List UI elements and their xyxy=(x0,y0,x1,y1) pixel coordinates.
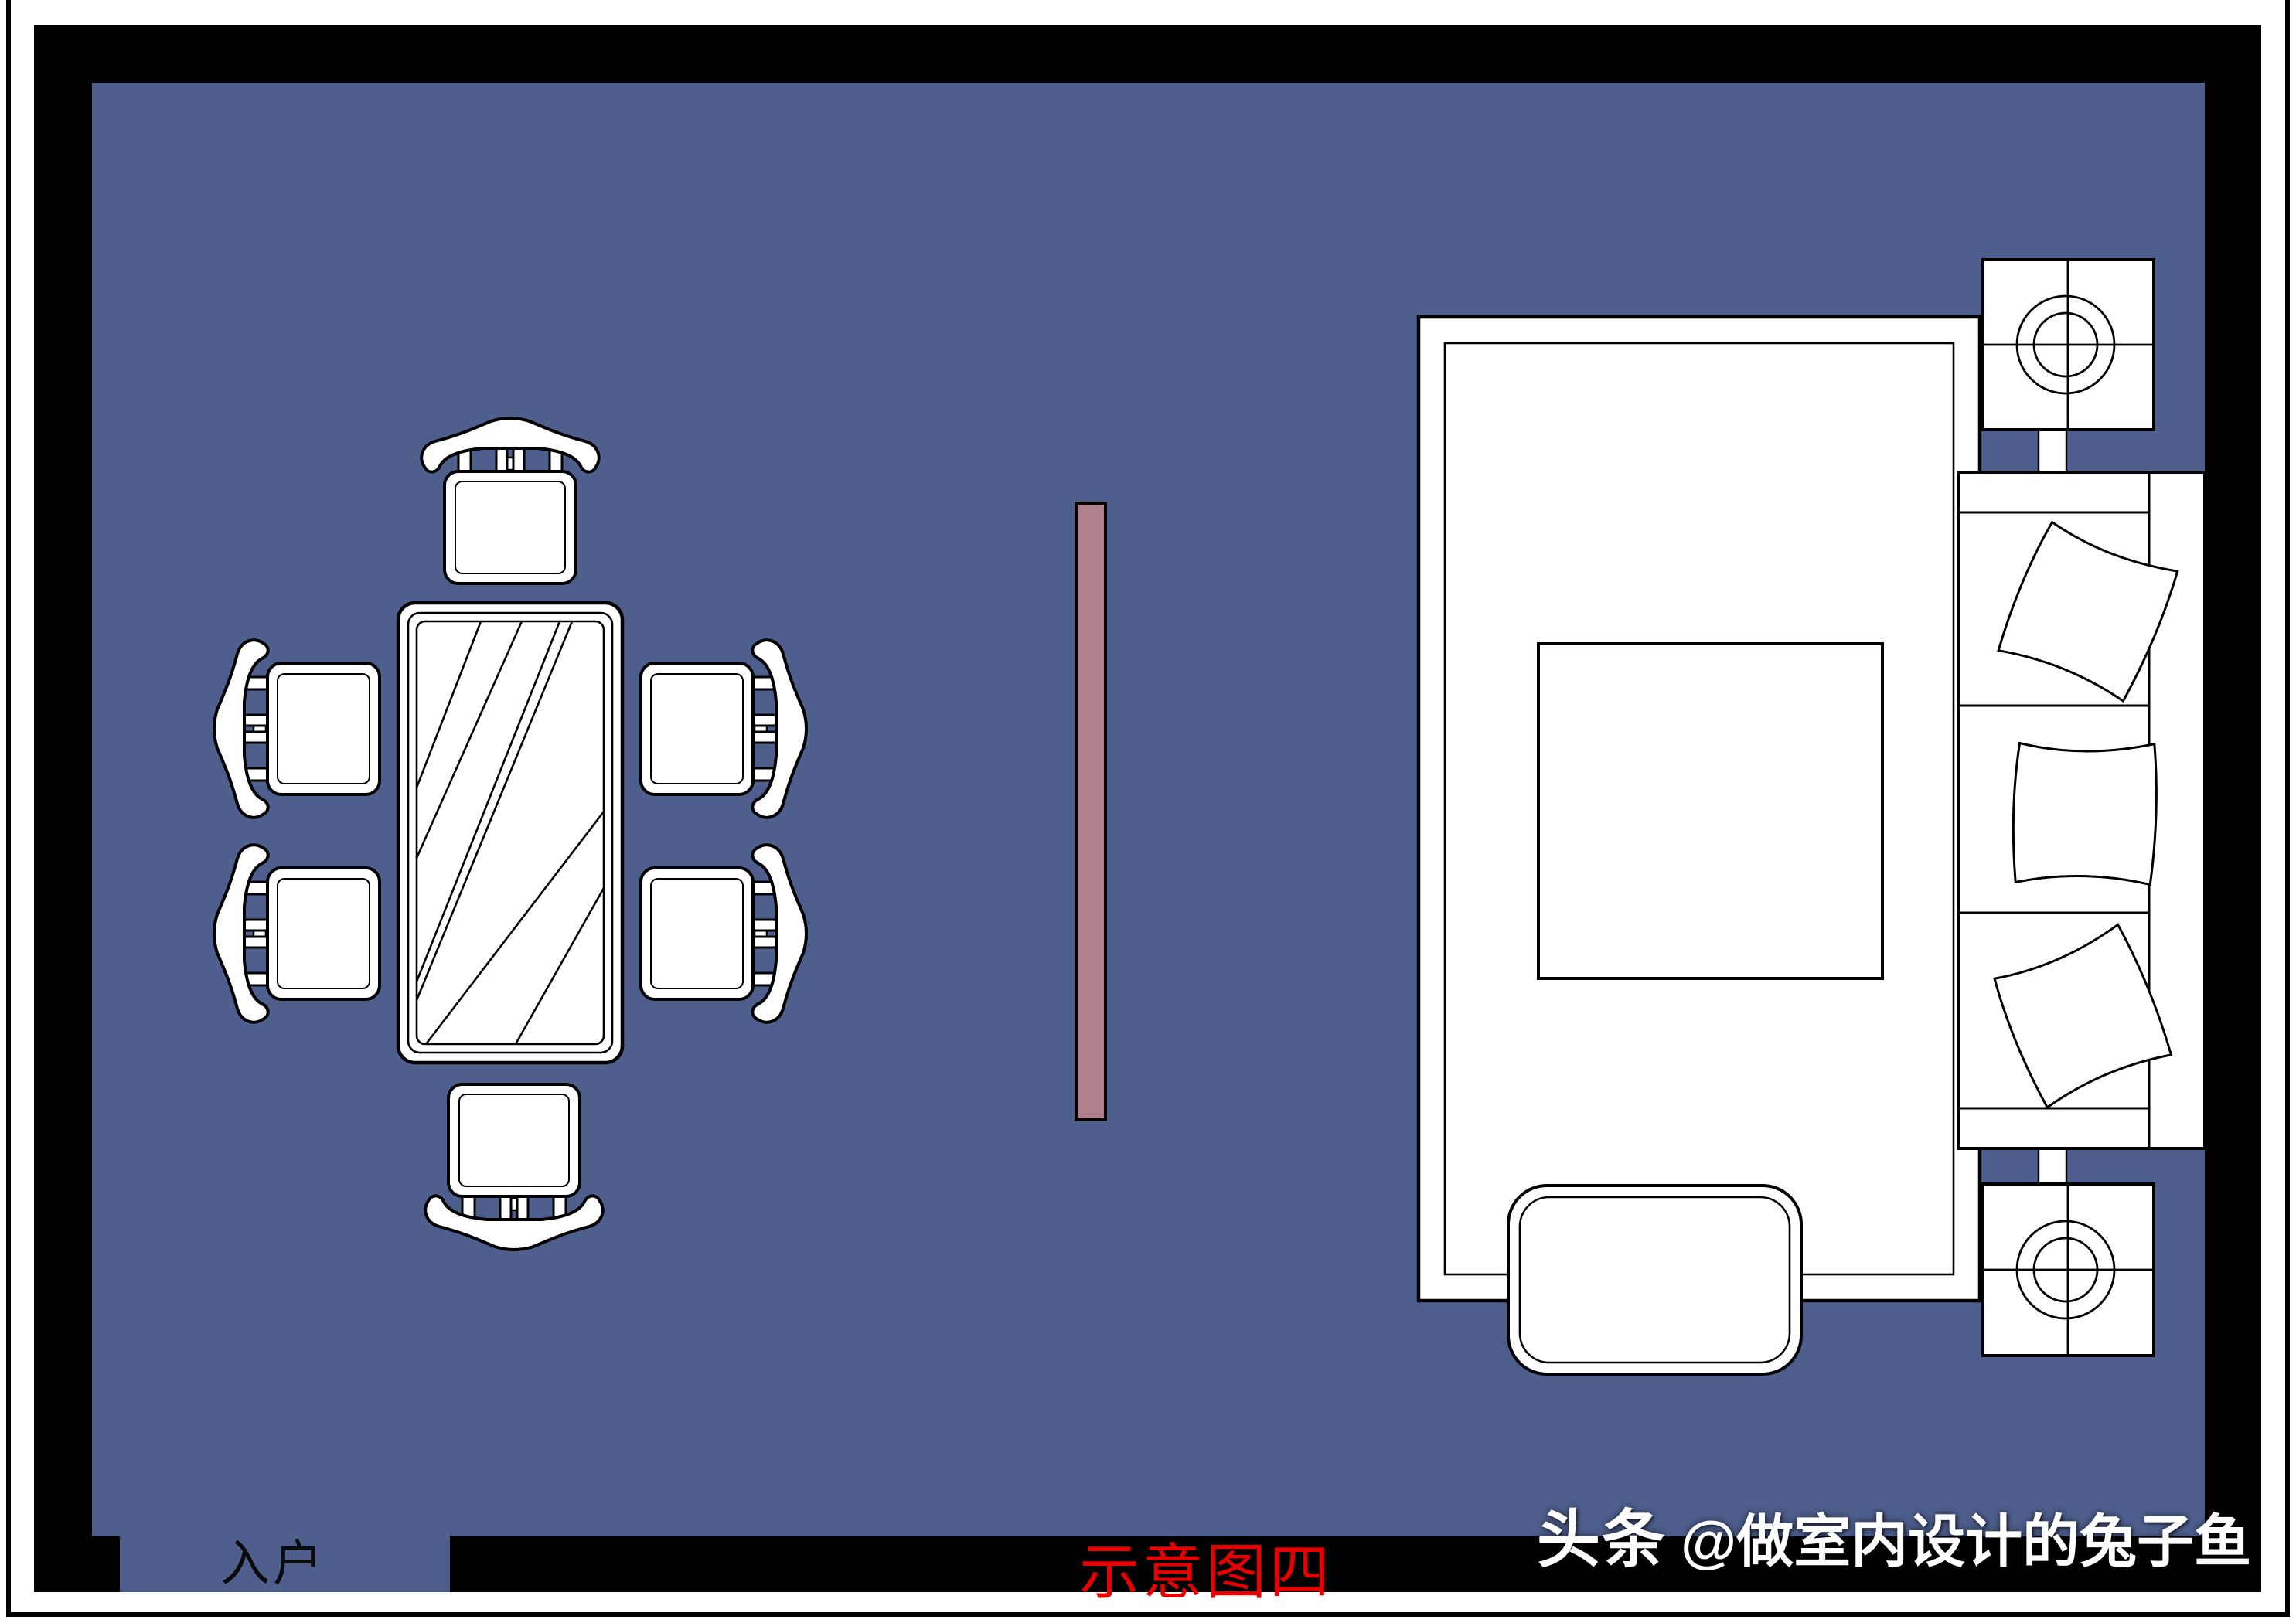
coffee-table xyxy=(1538,644,1882,978)
sofa xyxy=(1958,472,2205,1148)
page-border-bottom xyxy=(6,1612,2290,1617)
living-area-set xyxy=(1419,260,2205,1374)
partition-screen xyxy=(1076,503,1105,1120)
watermark-brand: 头条 xyxy=(1537,1505,1667,1575)
furniture-linework xyxy=(0,0,2296,1623)
sofa-frame-connector-bottom xyxy=(2039,1146,2066,1186)
dining-chair-bottom xyxy=(425,1084,602,1250)
dining-chair-right-1 xyxy=(641,640,806,817)
dining-table xyxy=(398,603,622,1063)
dining-chair-right-2 xyxy=(641,845,806,1022)
entrance-label: 入户 xyxy=(220,1540,325,1589)
watermark: 头条@做室内设计的兔子鱼 xyxy=(1537,1509,2251,1572)
dining-chair-left-2 xyxy=(214,845,380,1022)
sofa-frame-connector-top xyxy=(2039,428,2066,475)
floor-plan-canvas: 入户 示意图四 头条@做室内设计的兔子鱼 xyxy=(0,0,2296,1623)
sofa-pillow-2 xyxy=(2010,737,2160,889)
diagram-caption: 示意图四 xyxy=(1079,1543,1333,1603)
dining-set xyxy=(214,418,806,1250)
tv-cabinet xyxy=(1508,1186,1801,1374)
watermark-handle: @做室内设计的兔子鱼 xyxy=(1681,1509,2251,1574)
page-border-left xyxy=(6,0,11,1617)
dining-chair-left-1 xyxy=(214,640,380,817)
dining-chair-top xyxy=(421,418,598,584)
side-table-bottom xyxy=(1983,1184,2154,1356)
side-table-top xyxy=(1983,260,2154,430)
page-border-right xyxy=(2285,0,2290,1617)
